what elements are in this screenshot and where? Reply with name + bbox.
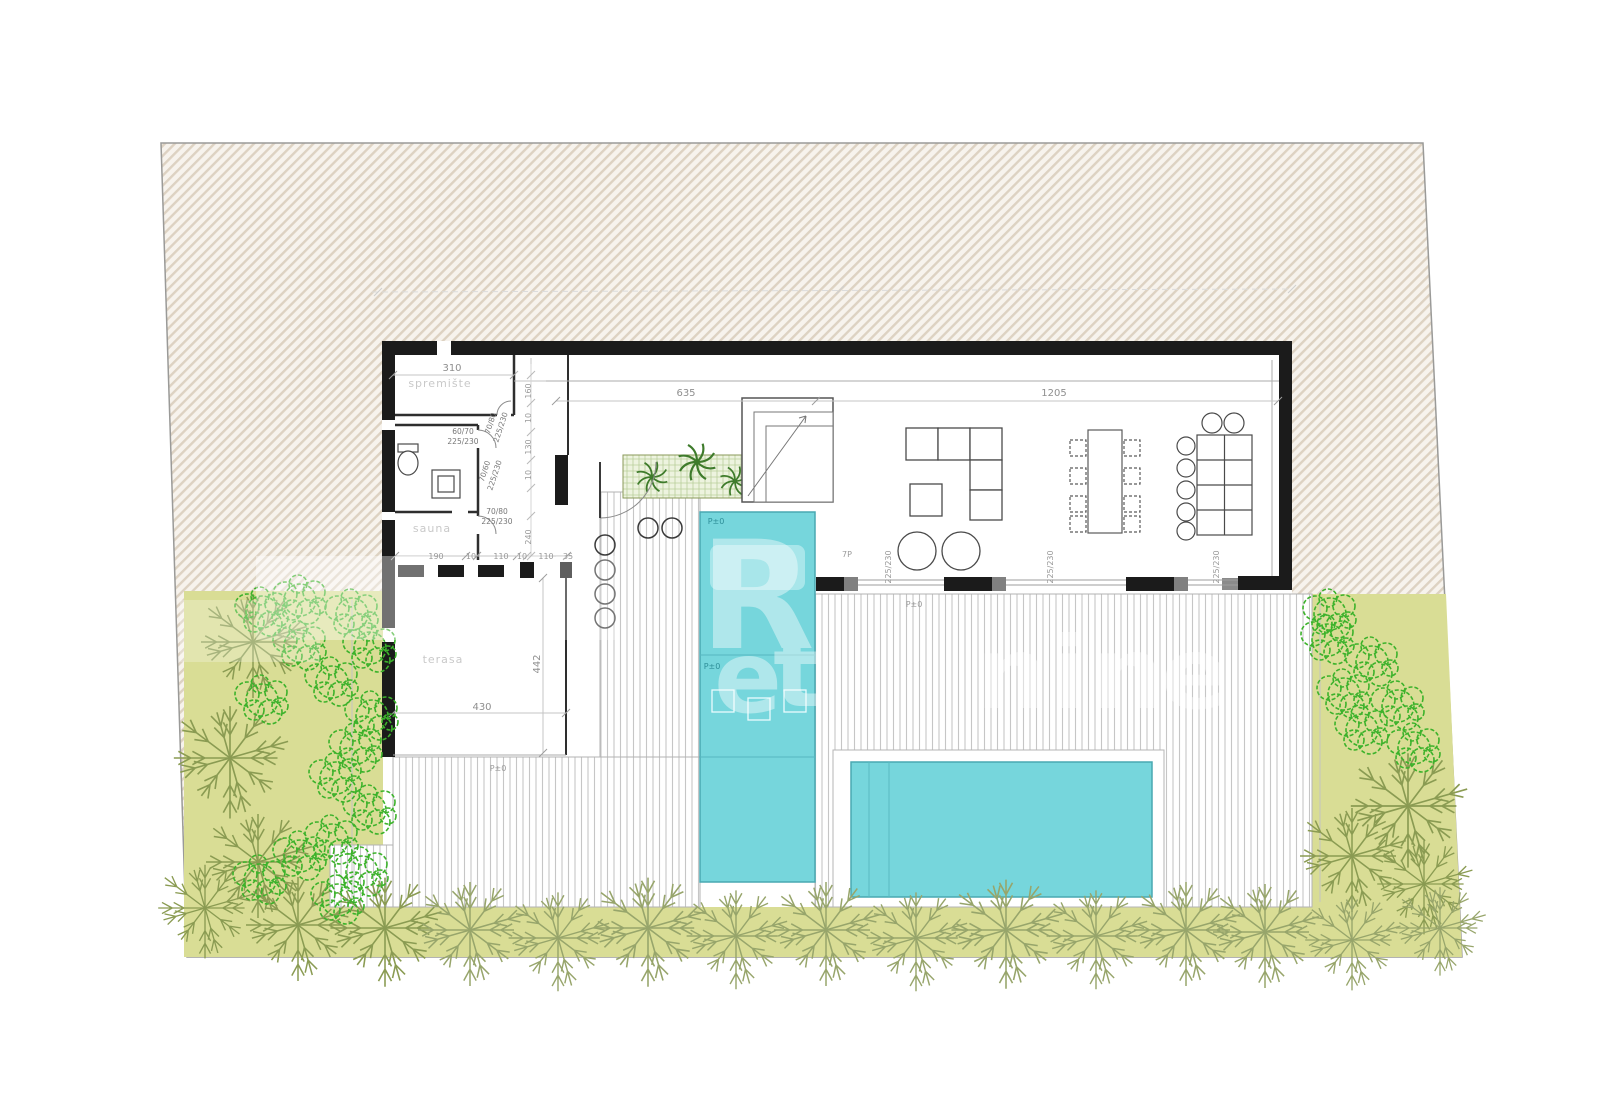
door-spec-label: 225/230	[481, 517, 512, 526]
door-spec-label: 225/230	[447, 437, 478, 446]
dimension-label: 635	[676, 388, 695, 399]
watermark-letter: e	[1161, 615, 1229, 732]
dimension-label: 310	[442, 363, 461, 374]
dimension-label: 160	[524, 383, 533, 398]
level-mark-label: P±0	[490, 764, 507, 773]
dimension-label: 130	[524, 439, 533, 454]
room-label: sauna	[413, 522, 451, 535]
staircase	[742, 398, 833, 502]
dimension-label: 225/230	[884, 550, 893, 583]
dimension-label: 10	[517, 552, 527, 561]
dimension-label: 442	[532, 654, 543, 673]
dimension-label: 10	[524, 413, 533, 423]
dimension-label: 225/230	[1046, 550, 1055, 583]
dimension-label: 110	[538, 552, 553, 561]
bar-stool	[1177, 481, 1195, 499]
dimension-label: 35	[563, 552, 573, 561]
bar-stool	[1177, 459, 1195, 477]
floor-plan-page: R etnine spremištesaunaterasa31063512051…	[0, 0, 1600, 1117]
door-spec-label: 60/70	[452, 427, 474, 436]
level-mark-label: P±0	[708, 517, 725, 526]
dimension-label: 240	[524, 529, 533, 544]
dining-table-group	[1070, 430, 1140, 533]
room-label: spremište	[408, 377, 471, 390]
round-table	[942, 532, 980, 570]
level-mark-label: P±0	[704, 662, 721, 671]
dimension-label: 225/230	[1212, 550, 1221, 583]
watermark-letter: i	[1053, 615, 1087, 732]
bar-stool	[1177, 437, 1195, 455]
bar-stool	[1224, 413, 1244, 433]
room-label: terasa	[423, 653, 464, 666]
watermark-letter: t	[773, 613, 821, 730]
dimension-label: 1205	[1041, 388, 1066, 399]
dimension-label: 10	[466, 552, 476, 561]
level-mark-label: 7P	[842, 550, 852, 559]
sink-icon	[438, 476, 454, 492]
watermark-letter: e	[714, 619, 782, 736]
dimension-label: 110	[493, 552, 508, 561]
dimension-label: 10	[524, 470, 533, 480]
dimension-label: 190	[428, 552, 443, 561]
level-mark-label: P±0	[906, 600, 923, 609]
door-spec-label: 70/80	[486, 507, 508, 516]
floor-plan-drawing: R etnine spremištesaunaterasa31063512051…	[0, 0, 1600, 1117]
watermark-letter: n	[1092, 615, 1163, 732]
bar-stool	[1202, 413, 1222, 433]
dimension-label: 430	[472, 702, 491, 713]
toilet-icon	[398, 451, 418, 475]
pool-large	[851, 762, 1152, 897]
round-table	[898, 532, 936, 570]
bar-stool	[1177, 503, 1195, 521]
bar-stool	[1177, 522, 1195, 540]
watermark-letter: n	[976, 615, 1047, 732]
